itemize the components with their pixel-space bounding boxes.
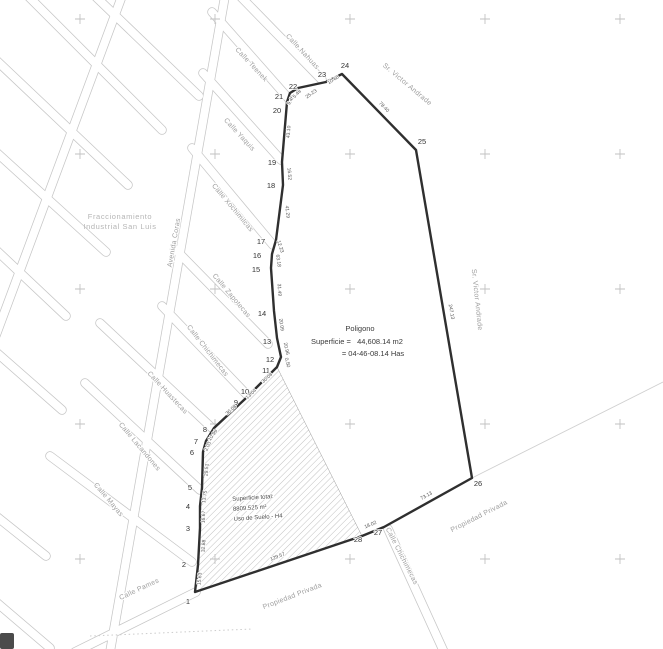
- vertex-number: 5: [188, 483, 192, 492]
- vertex-number: 14: [258, 309, 266, 318]
- polygon-area-m2: Superficie = 44,608.14 m2: [311, 337, 403, 346]
- polygon-area-has: = 04-46-08.14 Has: [342, 349, 405, 358]
- edge-length-label: 29.51: [203, 463, 210, 476]
- annotation-label: Propiedad Privada: [450, 499, 509, 534]
- vertex-number: 2: [182, 560, 186, 569]
- street-label: Calle Chichimecas: [384, 527, 419, 587]
- property-boundary-line: [472, 382, 663, 478]
- vertex-number: 16: [253, 251, 261, 260]
- annotation-label: Sr. Victor Andrade: [381, 62, 433, 107]
- vertex-number: 20: [273, 106, 281, 115]
- edge-length-label: 16.67: [201, 510, 207, 523]
- vertex-number: 25: [418, 137, 426, 146]
- edge-length-label: 31.49: [276, 283, 283, 296]
- vertex-number: 4: [186, 502, 190, 511]
- vertex-number: 19: [268, 158, 276, 167]
- survey-map: Calle NahuasCalle TeenekCalle YaquisCall…: [0, 0, 663, 649]
- street-label: Calle Mayas: [92, 482, 124, 519]
- street-label: Calle Chichimecas: [185, 324, 229, 378]
- vertex-number: 27: [374, 528, 382, 537]
- vertex-number: 26: [474, 479, 482, 488]
- vertex-number: 18: [267, 181, 275, 190]
- vertex-number: 15: [252, 265, 260, 274]
- edge-length-label: 247.13: [447, 304, 456, 320]
- edge-length-label: 43.10: [285, 125, 292, 138]
- edge-length-label: 32.88: [201, 539, 208, 552]
- annotation-label: Propiedad Privada: [262, 582, 323, 611]
- annotation-label: Sr. Victor Andrade: [470, 269, 483, 331]
- vertex-number: 6: [190, 448, 194, 457]
- vertex-number: 3: [186, 524, 190, 533]
- vertex-number: 23: [318, 70, 326, 79]
- polygon-title: Poligono: [345, 324, 374, 333]
- region-label: Fraccionamiento Industrial San Luis: [83, 212, 156, 231]
- vertex-number: 21: [275, 92, 283, 101]
- vertex-number: 7: [194, 437, 198, 446]
- vertex-number: 24: [341, 61, 349, 70]
- corner-mark: [0, 633, 14, 649]
- region-label-line2: Industrial San Luis: [83, 222, 156, 231]
- survey-plan-page: Calle NahuasCalle TeenekCalle YaquisCall…: [0, 0, 663, 649]
- vertex-number: 13: [263, 337, 271, 346]
- vertex-number: 12: [266, 355, 274, 364]
- vertex-number: 28: [354, 535, 362, 544]
- vertex-number: 8: [203, 425, 207, 434]
- vertex-number: 1: [186, 597, 190, 606]
- edge-length-label: 16.52: [285, 167, 292, 180]
- vertex-number: 22: [289, 82, 297, 91]
- region-label-line1: Fraccionamiento: [88, 212, 152, 221]
- vertex-number: 17: [257, 237, 265, 246]
